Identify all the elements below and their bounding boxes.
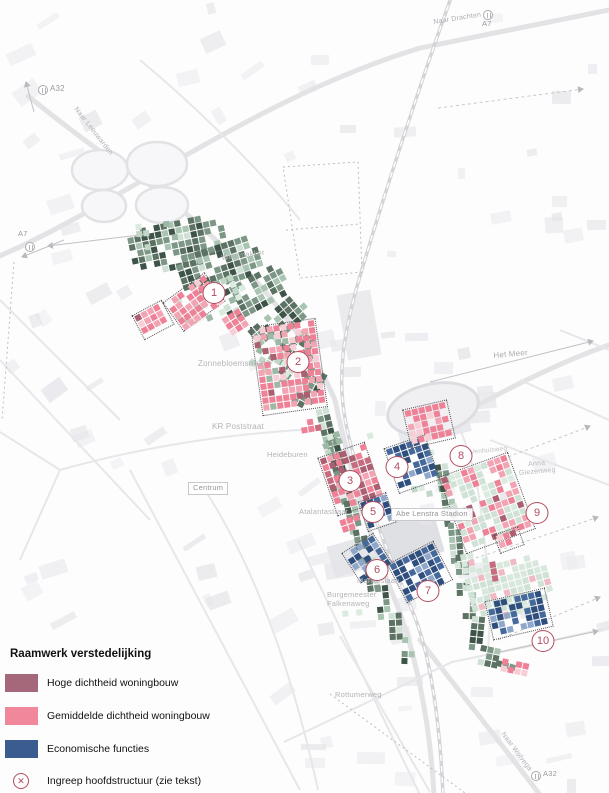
urban-plan-map: A32Naar LeeuwardenNaar DrachtenA7A7Weinm… [0,0,609,793]
map-marker-8: 8 [450,445,473,467]
legend-title: Raamwerk verstedelijking [10,648,255,660]
map-marker-4: 4 [386,456,409,478]
economic-swatch [5,740,38,758]
legend-item-intervention: ✕ Ingreep hoofdstructuur (zie tekst) [5,773,255,793]
map-marker-2: 2 [287,351,310,373]
legend-item-economic: Economische functies [5,740,255,773]
legend-label: Hoge dichtheid woningbouw [47,677,178,689]
map-marker-7: 7 [417,580,440,602]
map-marker-6: 6 [366,559,389,581]
legend-label: Gemiddelde dichtheid woningbouw [47,710,210,722]
legend-label: Ingreep hoofdstructuur (zie tekst) [47,775,201,787]
legend-item-medium-density: Gemiddelde dichtheid woningbouw [5,707,255,740]
circle-x-icon: ✕ [13,773,29,789]
map-marker-10: 10 [532,630,555,652]
legend-item-high-density: Hoge dichtheid woningbouw [5,674,255,707]
medium-density-swatch [5,707,38,725]
legend-label: Economische functies [47,743,149,755]
legend: Raamwerk verstedelijking Hoge dichtheid … [5,648,255,793]
map-marker-5: 5 [362,501,385,523]
map-marker-3: 3 [339,470,362,492]
map-marker-9: 9 [526,502,549,524]
high-density-swatch [5,674,38,692]
map-marker-1: 1 [203,282,226,304]
